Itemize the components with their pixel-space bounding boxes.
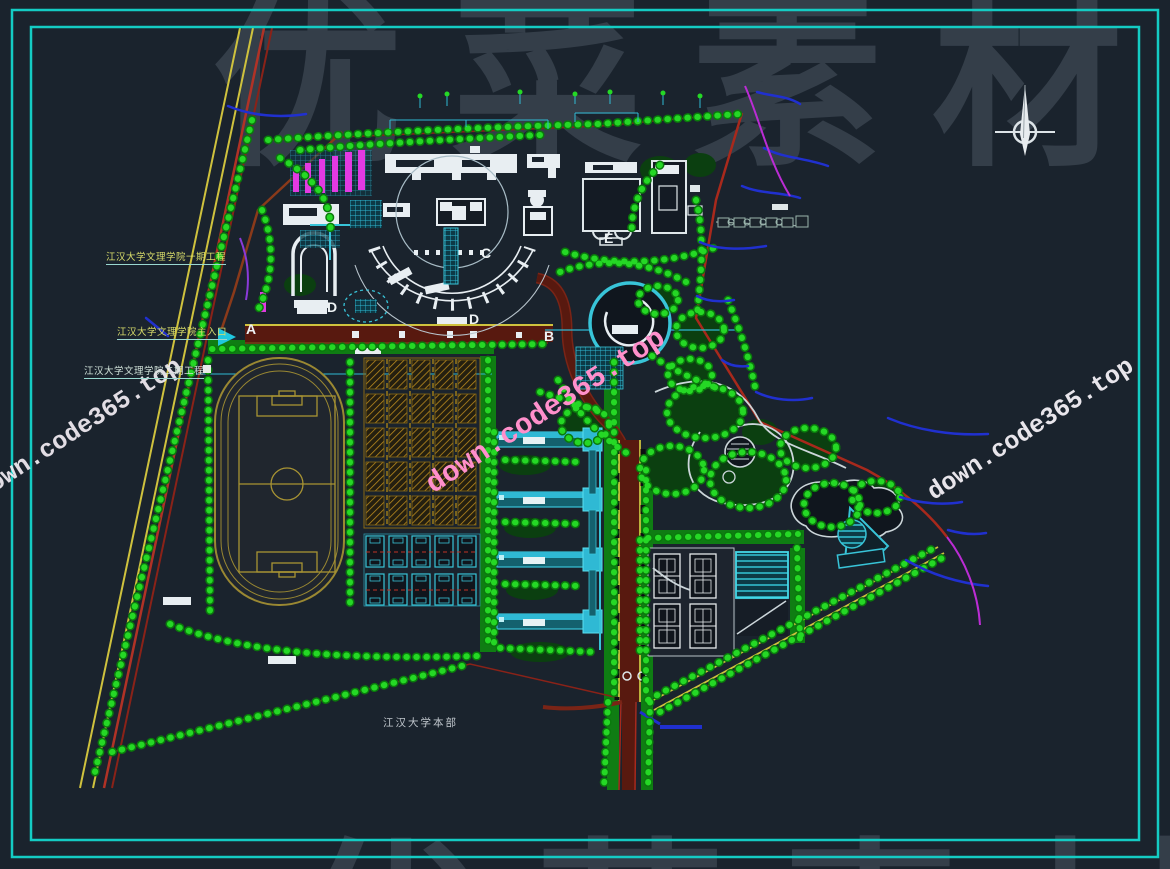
zone-letter-a: A <box>246 321 256 337</box>
central-arc-building <box>344 156 549 335</box>
pergola-corridor <box>716 204 808 227</box>
cad-site-plan: 优菜素材 优菜素材 <box>0 0 1170 869</box>
dormitory-blocks <box>364 358 480 528</box>
zone-letter-b: B <box>544 328 554 344</box>
zone-letter-d1: D <box>327 299 337 315</box>
dimension-dots <box>418 90 703 99</box>
label-main-entrance: 江汉大学文理学院主入口 <box>117 324 227 340</box>
stadium <box>215 358 344 605</box>
zone-letter-e: E <box>604 230 613 246</box>
zone-letter-d2: D <box>469 311 479 327</box>
basketball-courts <box>364 534 480 606</box>
tennis-courts <box>648 548 734 656</box>
phase2-leader-square <box>203 365 211 373</box>
label-phase2-project: 江汉大学文理学院二期工程 <box>84 363 204 379</box>
label-phase1-project: 江汉大学文理学院一期工程 <box>106 249 226 265</box>
zone-letter-c: C <box>481 245 491 261</box>
swimming-pool <box>736 552 788 636</box>
label-campus-name: 江汉大学本部 <box>383 715 458 730</box>
north-arrow-icon <box>995 85 1055 156</box>
